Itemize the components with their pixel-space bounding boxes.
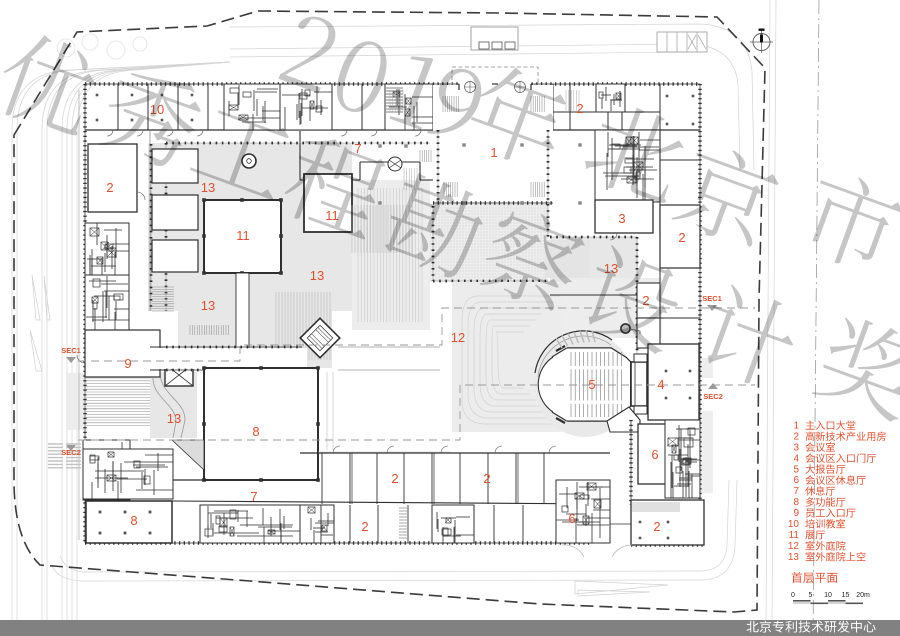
svg-text:13: 13 [310,268,324,283]
svg-text:6: 6 [793,475,799,486]
svg-text:2: 2 [361,519,368,534]
svg-text:13: 13 [167,411,181,426]
svg-text:13: 13 [788,552,800,563]
svg-text:2: 2 [576,101,583,116]
svg-text:11: 11 [789,530,800,541]
svg-text:12: 12 [788,541,800,552]
svg-text:2: 2 [653,519,660,534]
svg-text:8: 8 [252,424,259,439]
svg-text:5: 5 [588,377,595,392]
svg-text:2: 2 [678,230,685,245]
svg-text:12: 12 [451,330,465,345]
svg-text:15: 15 [842,592,850,599]
svg-text:5: 5 [809,592,813,599]
svg-text:1: 1 [793,421,799,432]
svg-text:SEC1: SEC1 [702,294,722,303]
svg-text:2: 2 [106,180,113,195]
svg-text:0: 0 [791,592,795,599]
svg-text:9: 9 [793,508,799,519]
svg-text:7: 7 [793,486,799,497]
svg-text:10: 10 [788,519,800,530]
svg-text:5: 5 [793,464,799,475]
svg-text:SEC2: SEC2 [703,392,723,401]
svg-text:1: 1 [490,145,497,160]
svg-text:4: 4 [793,453,799,464]
svg-text:9: 9 [124,356,131,371]
svg-text:2: 2 [391,471,398,486]
svg-text:4: 4 [657,377,664,392]
svg-text:6: 6 [651,447,658,462]
svg-text:2: 2 [483,471,490,486]
svg-text:8: 8 [793,497,799,508]
svg-text:20m: 20m [856,592,870,599]
svg-text:7: 7 [250,489,257,504]
svg-text:6: 6 [568,511,575,526]
svg-text:13: 13 [201,298,215,313]
svg-text:3: 3 [618,211,625,226]
svg-text:3: 3 [793,442,799,453]
svg-text:10: 10 [824,592,832,599]
svg-text:2: 2 [793,431,799,442]
svg-text:11: 11 [236,228,250,243]
svg-text:8: 8 [130,513,137,528]
svg-text:SEC1: SEC1 [61,346,81,355]
svg-text:13: 13 [201,180,215,195]
